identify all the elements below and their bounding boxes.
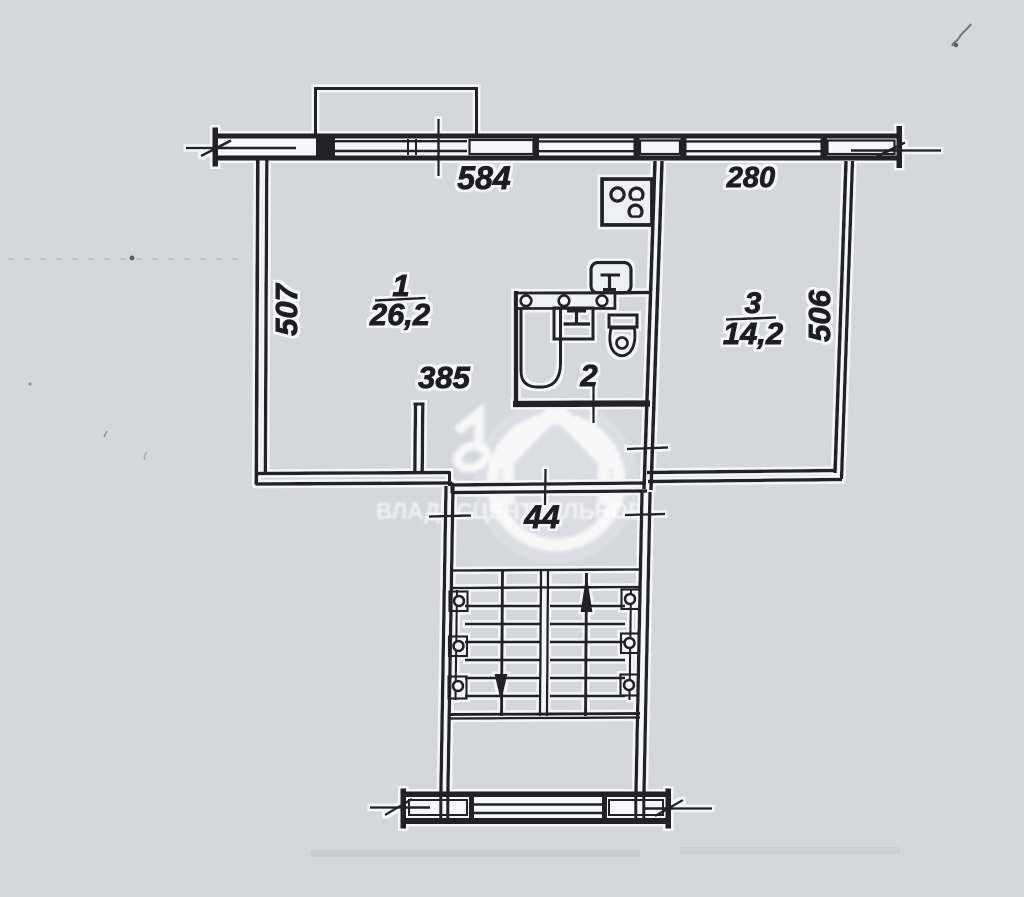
svg-text:507: 507 [269, 282, 304, 335]
svg-text:ВЛАДИСЦЕНТРАЛЬНОЕ: ВЛАДИСЦЕНТРАЛЬНОЕ [376, 498, 643, 524]
svg-text:280: 280 [726, 162, 775, 194]
svg-text:584: 584 [457, 160, 511, 196]
svg-text:14,2: 14,2 [723, 316, 783, 351]
svg-text:44: 44 [523, 499, 560, 535]
svg-text:2: 2 [579, 358, 597, 393]
svg-text:26,2: 26,2 [369, 297, 430, 332]
svg-text:385: 385 [418, 360, 470, 395]
svg-text:506: 506 [802, 289, 837, 341]
